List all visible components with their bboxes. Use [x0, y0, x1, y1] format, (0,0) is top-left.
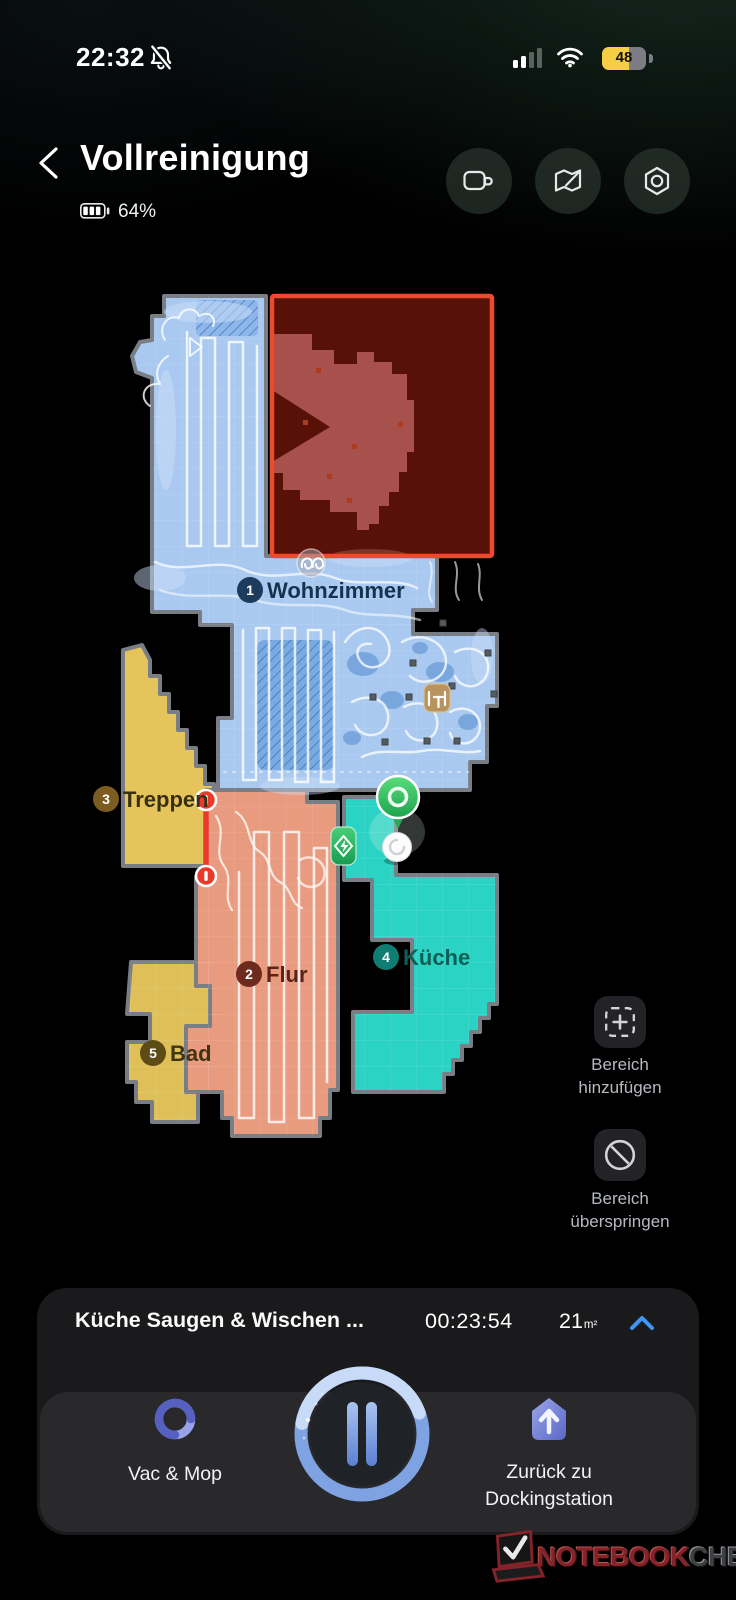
- svg-text:Treppen: Treppen: [123, 787, 209, 812]
- battery-nub: [649, 54, 653, 63]
- add-zone-label: Bereich hinzufügen: [552, 1053, 688, 1099]
- status-time: 22:32: [76, 42, 145, 73]
- pause-button[interactable]: [292, 1364, 432, 1504]
- signal-icon: [513, 47, 547, 69]
- map-edit-icon: [553, 167, 583, 195]
- return-to-dock-label: Zurück zu Dockingstation: [429, 1459, 669, 1513]
- skip-zone-rect[interactable]: [272, 296, 492, 556]
- robot-battery-icon: [80, 203, 110, 219]
- settings-nut-icon: [642, 166, 672, 196]
- notebookcheck-watermark: NOTEBOOKCHECK: [487, 1528, 736, 1586]
- room-label-treppen: 3 Treppen: [93, 786, 209, 812]
- chevron-up-icon[interactable]: [628, 1313, 656, 1333]
- dock-station-marker: [331, 827, 356, 865]
- battery-percent: 48: [602, 49, 646, 66]
- notebookcheck-laptop-icon: [486, 1527, 547, 1588]
- svg-text:Wohnzimmer: Wohnzimmer: [267, 578, 405, 603]
- video-camera-button[interactable]: [446, 148, 512, 214]
- video-camera-icon: [463, 169, 495, 193]
- bell-slash-icon: [148, 44, 174, 72]
- vac-mop-button[interactable]: Vac & Mop: [95, 1396, 255, 1486]
- skip-zone-button[interactable]: [594, 1129, 646, 1181]
- add-zone-button[interactable]: [594, 996, 646, 1048]
- svg-text:2: 2: [245, 966, 253, 982]
- svg-text:Bad: Bad: [170, 1041, 212, 1066]
- map-edit-button[interactable]: [535, 148, 601, 214]
- room-label-flur: 2 Flur: [236, 961, 308, 987]
- add-zone-icon: [603, 1005, 637, 1039]
- cleaned-area: 21m²: [559, 1309, 597, 1334]
- skip-zone-icon: [603, 1138, 637, 1172]
- carpet-squiggle-icon: [297, 549, 325, 577]
- svg-text:1: 1: [246, 582, 254, 598]
- battery-icon: 48: [602, 47, 646, 70]
- svg-text:Flur: Flur: [266, 962, 308, 987]
- pause-icon: [292, 1364, 432, 1504]
- task-title: Küche Saugen & Wischen ...: [75, 1308, 364, 1333]
- svg-text:4: 4: [382, 949, 390, 965]
- page-title: Vollreinigung: [80, 137, 310, 179]
- room-label-bad: 5 Bad: [140, 1040, 212, 1066]
- elapsed-time: 00:23:54: [425, 1309, 513, 1334]
- svg-text:5: 5: [149, 1045, 157, 1061]
- furniture-icon: [424, 684, 450, 712]
- back-icon[interactable]: [36, 146, 62, 180]
- svg-text:3: 3: [102, 791, 110, 807]
- wifi-icon: [556, 47, 584, 68]
- settings-button[interactable]: [624, 148, 690, 214]
- robot-battery-label: 64%: [118, 201, 156, 223]
- room-label-kueche: 4 Küche: [373, 944, 470, 970]
- vac-mop-label: Vac & Mop: [95, 1463, 255, 1486]
- vac-mop-swirl-icon: [152, 1396, 198, 1442]
- svg-text:Küche: Küche: [403, 945, 470, 970]
- skip-zone-label: Bereich überspringen: [552, 1187, 688, 1233]
- return-to-dock-button[interactable]: Zurück zu Dockingstation: [429, 1394, 669, 1513]
- app-screen: 1 Wohnzimmer 2 Flur 3 Treppen 4 Küche 5: [0, 0, 736, 1600]
- dock-home-icon: [527, 1394, 571, 1444]
